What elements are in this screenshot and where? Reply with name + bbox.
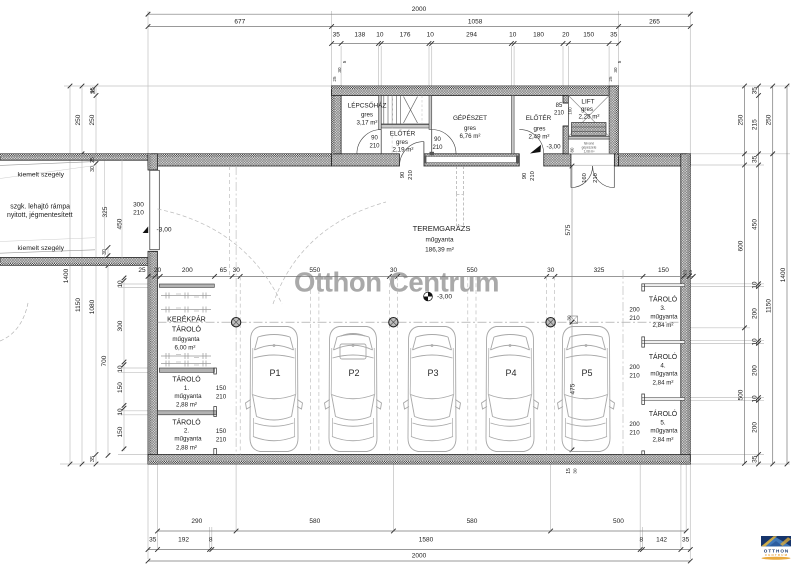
svg-text:150: 150: [583, 32, 594, 39]
svg-text:35: 35: [610, 32, 618, 39]
svg-text:250: 250: [89, 114, 96, 125]
svg-text:kiemelt szegély: kiemelt szegély: [18, 172, 65, 179]
svg-text:25: 25: [90, 157, 96, 163]
svg-text:nyitott, jégmentesített: nyitott, jégmentesített: [7, 212, 73, 219]
svg-text:kiemelt szegély: kiemelt szegély: [18, 245, 65, 252]
svg-text:210: 210: [530, 171, 536, 181]
svg-text:210: 210: [408, 170, 414, 180]
svg-text:200: 200: [752, 422, 759, 433]
svg-text:80: 80: [570, 147, 575, 152]
svg-text:210: 210: [369, 144, 380, 150]
svg-text:150: 150: [216, 385, 227, 392]
svg-text:700: 700: [101, 355, 108, 366]
svg-text:10: 10: [509, 32, 517, 39]
svg-text:200: 200: [752, 308, 759, 319]
svg-text:215: 215: [752, 119, 759, 130]
svg-text:30: 30: [390, 267, 398, 274]
svg-text:35: 35: [682, 537, 690, 544]
svg-text:5: 5: [342, 60, 347, 63]
svg-text:P4: P4: [505, 368, 516, 378]
svg-text:GÉPÉSZET: GÉPÉSZET: [453, 113, 487, 122]
svg-text:10: 10: [117, 365, 124, 373]
svg-text:30: 30: [573, 468, 578, 474]
svg-text:-3,00: -3,00: [437, 294, 452, 301]
svg-text:35: 35: [149, 537, 157, 544]
svg-text:580: 580: [467, 518, 478, 525]
svg-text:450: 450: [752, 219, 759, 230]
svg-text:TÁROLÓ: TÁROLÓ: [649, 352, 678, 361]
svg-text:-3,00: -3,00: [157, 226, 172, 233]
svg-text:4.: 4.: [660, 362, 666, 369]
svg-text:200: 200: [182, 267, 193, 274]
svg-text:10: 10: [376, 32, 384, 39]
svg-text:250: 250: [738, 114, 745, 125]
svg-text:1,08 m²: 1,08 m²: [584, 150, 595, 154]
svg-text:1080: 1080: [89, 299, 96, 314]
svg-text:600: 600: [738, 240, 745, 251]
svg-text:30: 30: [567, 315, 572, 321]
svg-text:P3: P3: [427, 368, 438, 378]
svg-text:500: 500: [613, 518, 624, 525]
svg-text:2000: 2000: [412, 553, 427, 560]
svg-text:2,25 m²: 2,25 m²: [579, 114, 600, 121]
svg-text:műgyanta: műgyanta: [650, 313, 678, 320]
svg-text:gres: gres: [464, 125, 476, 132]
svg-text:10: 10: [752, 338, 759, 346]
svg-text:210: 210: [593, 173, 599, 183]
svg-text:500: 500: [738, 389, 745, 400]
svg-text:TÁROLÓ: TÁROLÓ: [172, 325, 202, 334]
svg-text:294: 294: [466, 32, 477, 39]
svg-text:325: 325: [102, 206, 109, 217]
svg-text:30: 30: [102, 249, 108, 255]
svg-text:gres: gres: [396, 139, 408, 146]
svg-text:325: 325: [594, 267, 605, 274]
svg-text:35: 35: [90, 456, 96, 462]
svg-text:35: 35: [752, 455, 759, 463]
svg-text:1400: 1400: [63, 268, 70, 283]
svg-text:35: 35: [333, 32, 341, 39]
svg-text:10: 10: [117, 408, 124, 416]
svg-text:15: 15: [566, 468, 572, 474]
svg-text:1580: 1580: [419, 537, 434, 544]
svg-text:575: 575: [565, 224, 572, 235]
svg-text:35: 35: [752, 155, 759, 163]
svg-text:2000: 2000: [412, 6, 427, 13]
svg-text:30: 30: [337, 67, 342, 73]
svg-text:2,88 m²: 2,88 m²: [176, 402, 197, 409]
svg-text:65: 65: [220, 267, 228, 274]
svg-text:20: 20: [683, 270, 688, 276]
svg-text:250: 250: [766, 114, 773, 125]
svg-text:35: 35: [91, 88, 97, 94]
svg-text:P2: P2: [348, 368, 359, 378]
svg-text:5.: 5.: [660, 419, 666, 426]
svg-text:műgyanta: műgyanta: [425, 236, 454, 243]
svg-text:8: 8: [639, 537, 643, 544]
svg-text:210: 210: [216, 437, 227, 444]
svg-text:1058: 1058: [468, 19, 483, 26]
svg-text:2,84 m²: 2,84 m²: [653, 379, 674, 386]
svg-text:1.: 1.: [184, 385, 190, 392]
svg-text:160: 160: [568, 107, 573, 115]
svg-text:192: 192: [178, 537, 189, 544]
svg-text:8: 8: [209, 537, 213, 544]
svg-text:210: 210: [133, 210, 144, 217]
svg-text:6,00 m²: 6,00 m²: [175, 345, 196, 352]
svg-text:85: 85: [556, 103, 563, 109]
svg-text:550: 550: [309, 267, 320, 274]
svg-text:138: 138: [354, 32, 365, 39]
svg-text:10: 10: [752, 281, 759, 289]
svg-text:TÁROLÓ: TÁROLÓ: [649, 409, 678, 418]
svg-text:300: 300: [117, 320, 124, 331]
svg-text:200: 200: [629, 364, 640, 371]
svg-text:P5: P5: [581, 368, 592, 378]
svg-text:580: 580: [309, 518, 320, 525]
svg-text:15: 15: [688, 270, 693, 276]
svg-text:műgyanta: műgyanta: [174, 393, 202, 400]
svg-text:6,76 m²: 6,76 m²: [460, 133, 481, 140]
svg-text:2.: 2.: [184, 428, 190, 435]
svg-text:90: 90: [522, 173, 528, 179]
svg-text:250: 250: [75, 114, 82, 125]
svg-text:ELŐTÉR: ELŐTÉR: [390, 129, 416, 138]
svg-text:550: 550: [467, 267, 478, 274]
svg-text:677: 677: [234, 19, 245, 26]
svg-text:20: 20: [562, 32, 570, 39]
svg-text:176: 176: [400, 32, 411, 39]
svg-text:2,88 m²: 2,88 m²: [176, 444, 197, 451]
svg-text:210: 210: [629, 372, 640, 379]
svg-text:ELŐTÉR: ELŐTÉR: [526, 113, 552, 122]
svg-text:200: 200: [752, 365, 759, 376]
svg-text:30: 30: [547, 267, 555, 274]
svg-text:gres: gres: [361, 111, 373, 118]
svg-text:CENTRUM: CENTRUM: [765, 553, 788, 557]
svg-text:LÉPCSŐHÁZ: LÉPCSŐHÁZ: [348, 100, 387, 109]
svg-text:3.: 3.: [660, 305, 666, 312]
svg-text:20: 20: [154, 267, 162, 274]
svg-text:300: 300: [133, 202, 144, 209]
svg-text:5: 5: [617, 60, 622, 63]
svg-text:150: 150: [658, 267, 669, 274]
svg-text:3,17 m²: 3,17 m²: [357, 119, 378, 126]
svg-text:KERÉKPÁR: KERÉKPÁR: [167, 315, 206, 324]
svg-text:10: 10: [117, 280, 124, 288]
svg-text:210: 210: [554, 111, 565, 117]
svg-text:1150: 1150: [75, 298, 82, 312]
svg-text:LIFT: LIFT: [581, 99, 594, 106]
svg-text:200: 200: [629, 307, 640, 314]
svg-text:30: 30: [90, 166, 96, 172]
svg-text:180: 180: [533, 32, 544, 39]
svg-text:142: 142: [656, 537, 667, 544]
svg-text:150: 150: [216, 428, 227, 435]
svg-text:25: 25: [138, 267, 146, 274]
svg-text:TÁROLÓ: TÁROLÓ: [172, 375, 201, 384]
svg-text:290: 290: [191, 518, 202, 525]
svg-text:210: 210: [432, 145, 443, 151]
svg-text:210: 210: [629, 429, 640, 436]
svg-text:műgyanta: műgyanta: [650, 371, 678, 378]
svg-text:gres: gres: [533, 126, 545, 133]
svg-text:szgk. lehajtó rámpa: szgk. lehajtó rámpa: [10, 204, 70, 211]
svg-text:30: 30: [613, 67, 618, 73]
svg-text:200: 200: [629, 421, 640, 428]
svg-text:TEREMGARÁZS: TEREMGARÁZS: [413, 224, 471, 233]
svg-text:gres: gres: [581, 106, 593, 113]
svg-text:2,84 m²: 2,84 m²: [653, 322, 674, 329]
svg-text:475: 475: [570, 383, 577, 394]
svg-text:450: 450: [117, 218, 124, 229]
svg-text:90: 90: [434, 137, 441, 143]
svg-text:150: 150: [117, 382, 124, 393]
svg-text:25: 25: [608, 76, 613, 82]
svg-text:10: 10: [427, 32, 435, 39]
svg-text:265: 265: [649, 19, 660, 26]
svg-text:210: 210: [216, 394, 227, 401]
svg-text:műgyanta: műgyanta: [650, 428, 678, 435]
svg-text:35: 35: [752, 87, 759, 95]
svg-text:90: 90: [400, 172, 406, 178]
svg-text:TÁROLÓ: TÁROLÓ: [172, 417, 201, 426]
svg-text:-3,00: -3,00: [546, 144, 561, 151]
svg-text:10: 10: [752, 395, 759, 403]
svg-text:186,39 m²: 186,39 m²: [425, 246, 454, 253]
svg-text:műgyanta: műgyanta: [172, 336, 200, 343]
svg-text:1400: 1400: [780, 267, 787, 282]
svg-text:160: 160: [582, 173, 588, 183]
svg-text:150: 150: [117, 426, 124, 437]
svg-text:TÁROLÓ: TÁROLÓ: [649, 295, 678, 304]
svg-text:műgyanta: műgyanta: [174, 436, 202, 443]
svg-text:1150: 1150: [766, 299, 773, 313]
svg-text:2,19 m²: 2,19 m²: [393, 147, 414, 154]
svg-text:25: 25: [332, 76, 337, 82]
svg-text:P1: P1: [269, 368, 280, 378]
svg-text:210: 210: [629, 315, 640, 322]
svg-text:2,84 m²: 2,84 m²: [653, 436, 674, 443]
svg-text:90: 90: [371, 136, 378, 142]
